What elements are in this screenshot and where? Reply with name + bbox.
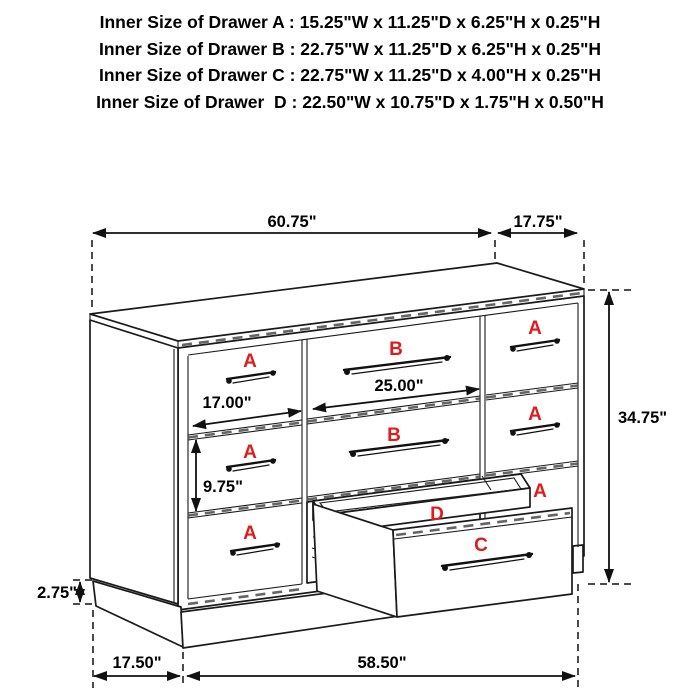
drawer-a3-left-label: A bbox=[243, 523, 257, 544]
dim-left-drawer-height-label: 9.75" bbox=[203, 478, 243, 496]
dim-overall-height-label: 34.75" bbox=[618, 409, 667, 427]
dim-base-height-label: 2.75" bbox=[37, 584, 77, 602]
drawer-b1-label: B bbox=[389, 339, 403, 360]
dim-middle-drawer-width-label: 25.00" bbox=[374, 377, 423, 395]
drawer-a1-right-label: A bbox=[528, 318, 542, 339]
drawer-a2-left-label: A bbox=[243, 442, 257, 463]
drawer-b2-label: B bbox=[387, 425, 401, 446]
drawer-a1-left-label: A bbox=[243, 351, 257, 372]
dim-base-width-label: 58.50" bbox=[357, 654, 406, 672]
dresser-diagram: A A A A A A B B D C bbox=[0, 0, 700, 700]
dim-top-width-label: 60.75" bbox=[267, 213, 316, 231]
drawer-a3-right-label: A bbox=[533, 481, 547, 502]
drawer-a2-right-label: A bbox=[528, 404, 542, 425]
dim-left-drawer-width-label: 17.00" bbox=[202, 394, 251, 412]
dim-top-depth-label: 17.75" bbox=[513, 213, 562, 231]
drawer-d-label: D bbox=[430, 504, 444, 525]
cabinet-left-side bbox=[90, 320, 178, 604]
right-foot bbox=[573, 545, 583, 573]
dresser-dimension-sheet: Inner Size of Drawer A : 15.25"W x 11.25… bbox=[0, 0, 700, 700]
dim-base-depth-label: 17.50" bbox=[112, 654, 161, 672]
drawer-c-label: C bbox=[474, 535, 488, 556]
